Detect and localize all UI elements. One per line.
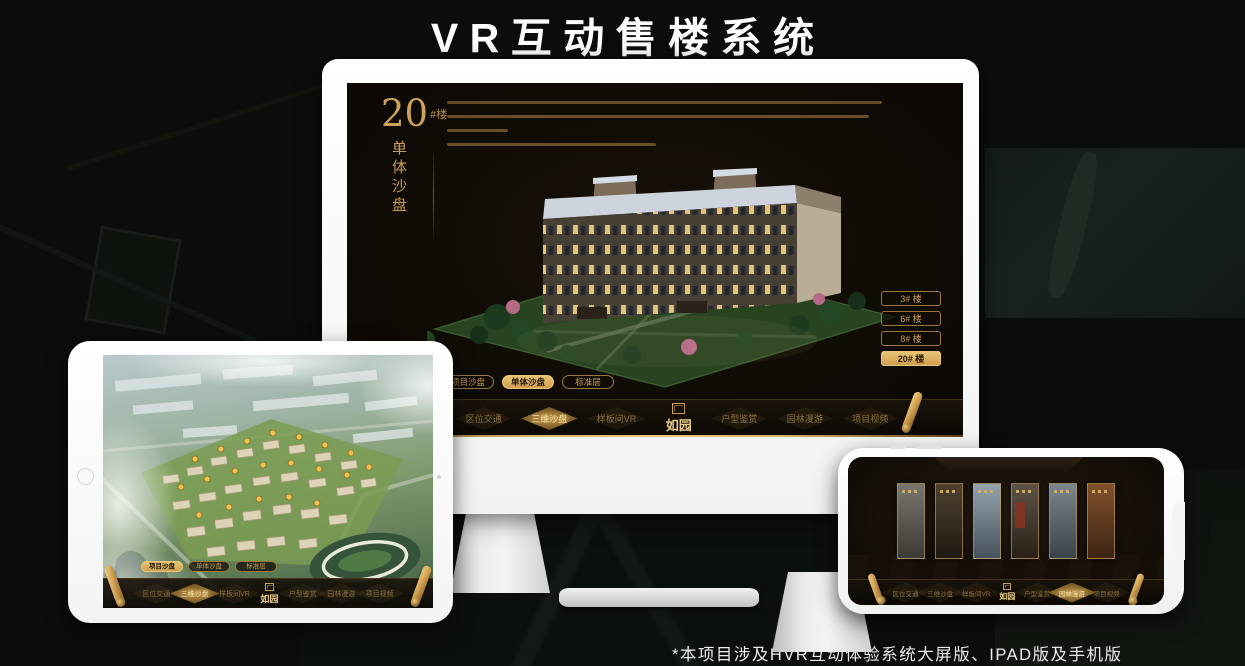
view-tab-group: 项目沙盘 单体沙盘 标准层 — [442, 375, 614, 389]
card-caption — [1092, 490, 1110, 493]
floor-button-8[interactable]: 8# 楼 — [881, 331, 941, 346]
scene-gallery — [897, 483, 1115, 559]
footnote-text: *本项目涉及HVR互动体验系统大屏版、IPAD版及手机版 — [672, 641, 1123, 665]
page: VR互动售楼系统 20#楼 单体沙盘 — [0, 0, 1245, 666]
nav-item-showroom-vr[interactable]: 样板间VR — [219, 589, 250, 599]
nav-item-location[interactable]: 区位交通 — [142, 589, 170, 599]
phone-nav-bar: 区位交通 三维沙盘 样板间VR 如园 户型鉴赏 园林漫游 项目视频 — [848, 579, 1164, 605]
gallery-card[interactable] — [935, 483, 963, 559]
floor-button-3[interactable]: 3# 楼 — [881, 291, 941, 306]
page-title: VR互动售楼系统 — [0, 4, 1245, 64]
nav-item-project-video[interactable]: 项目视频 — [1094, 588, 1120, 598]
bg-river — [1042, 149, 1104, 301]
tab-single-sandtable[interactable]: 单体沙盘 — [188, 561, 230, 572]
card-caption — [940, 490, 958, 493]
nav-item-3d-sandtable[interactable]: 三维沙盘 — [181, 589, 209, 599]
nav-item-project-video[interactable]: 项目视频 — [852, 412, 888, 425]
tablet-screen: 项目沙盘 单体沙盘 标准层 区位交通 三维沙盘 样板间VR 如园 户型鉴赏 园林… — [103, 355, 433, 608]
tab-project-sandtable[interactable]: 项目沙盘 — [141, 561, 183, 572]
seal-icon — [672, 403, 685, 414]
tablet-nav-bar: 区位交通 三维沙盘 样板间VR 如园 户型鉴赏 园林漫游 项目视频 — [103, 578, 433, 608]
nav-item-garden-tour[interactable]: 园林漫游 — [787, 412, 823, 425]
courtyard-photo — [934, 457, 1084, 473]
tablet-device: 项目沙盘 单体沙盘 标准层 区位交通 三维沙盘 样板间VR 如园 户型鉴赏 园林… — [68, 341, 453, 623]
nav-item-3d-sandtable[interactable]: 三维沙盘 — [531, 412, 567, 425]
phone-screen: 区位交通 三维沙盘 样板间VR 如园 户型鉴赏 园林漫游 项目视频 — [848, 457, 1164, 605]
floor-button-6[interactable]: 6# 楼 — [881, 311, 941, 326]
seal-icon — [265, 583, 274, 591]
nav-item-project-video[interactable]: 项目视频 — [366, 589, 394, 599]
phone-notch — [1172, 502, 1185, 560]
monitor-stand-foot — [559, 588, 759, 607]
seal-icon — [1003, 583, 1011, 590]
monitor-stand — [450, 513, 550, 593]
gallery-card[interactable] — [973, 483, 1001, 559]
phone-device: 区位交通 三维沙盘 样板间VR 如园 户型鉴赏 园林漫游 项目视频 — [838, 448, 1184, 614]
bg-aerial-photo — [985, 148, 1245, 318]
tab-standard-floor[interactable]: 标准层 — [562, 375, 614, 389]
block-number: 20 — [381, 92, 428, 135]
tab-single-sandtable[interactable]: 单体沙盘 — [502, 375, 554, 389]
gallery-card[interactable] — [1049, 483, 1077, 559]
gallery-card[interactable] — [1087, 483, 1115, 559]
nav-item-3d-sandtable[interactable]: 三维沙盘 — [927, 588, 953, 598]
gallery-card[interactable] — [897, 483, 925, 559]
brand-logo: 如园 — [999, 583, 1015, 602]
nav-item-location[interactable]: 区位交通 — [892, 588, 918, 598]
volume-button[interactable] — [890, 446, 906, 449]
block-vertical-title: 单体沙盘 — [389, 140, 410, 216]
tablet-view-tab-group: 项目沙盘 单体沙盘 标准层 — [141, 561, 277, 572]
card-caption — [1054, 490, 1072, 493]
brand-logo: 如园 — [666, 403, 692, 434]
nav-item-floorplans[interactable]: 户型鉴赏 — [1024, 588, 1050, 598]
building-3d-model[interactable] — [427, 141, 902, 391]
card-caption — [902, 490, 920, 493]
tab-standard-floor[interactable]: 标准层 — [235, 561, 277, 572]
bg-road — [67, 74, 354, 171]
home-button[interactable] — [77, 468, 94, 485]
camera-icon — [437, 475, 441, 479]
nav-item-showroom-vr[interactable]: 样板间VR — [962, 588, 991, 598]
volume-button[interactable] — [916, 446, 942, 449]
card-caption — [1016, 490, 1034, 493]
card-caption — [978, 490, 996, 493]
brand-logo: 如园 — [260, 583, 278, 605]
nav-item-floorplans[interactable]: 户型鉴赏 — [721, 412, 757, 425]
nav-item-location[interactable]: 区位交通 — [466, 412, 502, 425]
nav-item-floorplans[interactable]: 户型鉴赏 — [289, 589, 317, 599]
nav-item-garden-tour[interactable]: 园林漫游 — [1059, 588, 1085, 598]
bg-sign-board — [84, 226, 181, 335]
block-number-unit: #楼 — [430, 109, 447, 121]
gallery-card[interactable] — [1011, 483, 1039, 559]
nav-item-garden-tour[interactable]: 园林漫游 — [327, 589, 355, 599]
floor-button-group: 3# 楼 6# 楼 8# 楼 20# 楼 — [881, 291, 941, 366]
floor-button-20[interactable]: 20# 楼 — [881, 351, 941, 366]
nav-item-showroom-vr[interactable]: 样板间VR — [597, 412, 637, 425]
